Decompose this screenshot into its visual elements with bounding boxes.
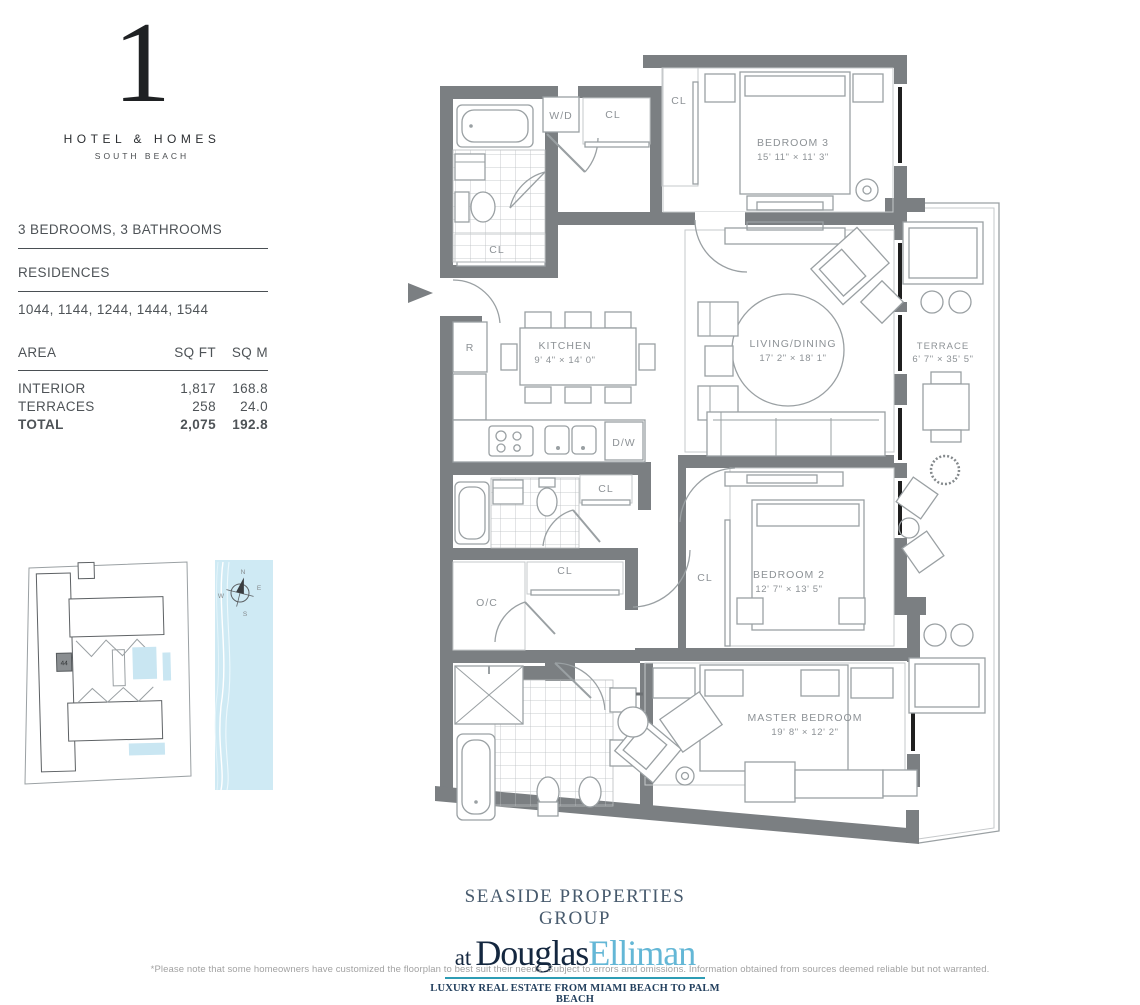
room-dims: 19' 8" × 12' 2"	[771, 727, 838, 738]
room-name: MASTER BEDROOM	[748, 712, 863, 724]
cabinet	[883, 770, 917, 796]
room-dims: 6' 7" × 35' 5"	[912, 354, 973, 365]
sink	[493, 480, 523, 504]
stool	[924, 624, 946, 646]
col-sqft: SQ FT	[154, 345, 216, 360]
side-table	[705, 346, 733, 376]
table-row-total: TOTAL 2,075 192.8	[18, 416, 268, 434]
bed	[740, 72, 850, 194]
compass-w: W	[218, 593, 225, 600]
bathroom-1	[453, 105, 545, 266]
nightstand	[705, 74, 735, 102]
lounge	[903, 222, 983, 284]
closet-hall: CL	[583, 98, 650, 147]
lamp	[856, 179, 878, 201]
pool	[129, 743, 165, 756]
kitchen: R KITCHEN 9' 4" × 14' 0" D/W	[453, 312, 655, 462]
residences-list: 1044, 1144, 1244, 1444, 1544	[18, 302, 268, 317]
area-table-header: AREA SQ FT SQ M	[18, 343, 268, 371]
room-name: BEDROOM 2	[753, 569, 825, 581]
master-bathroom	[455, 663, 643, 820]
row-label: TERRACES	[18, 399, 154, 414]
chair	[525, 312, 551, 328]
oc-label: O/C	[476, 597, 498, 609]
cooktop	[489, 426, 533, 456]
closet-label: CL	[605, 109, 620, 121]
door-arc	[495, 602, 525, 642]
stool	[949, 291, 971, 313]
closet-slider	[531, 590, 619, 595]
nightstand	[851, 668, 893, 698]
closet-label: CL	[697, 572, 712, 584]
stool	[951, 624, 973, 646]
room-dims: 9' 4" × 14' 0"	[534, 355, 595, 366]
hotel-logo: 1 HOTEL & HOMES SOUTH BEACH	[58, 8, 226, 161]
nightstand	[737, 598, 763, 624]
room-dims: 12' 7" × 13' 5"	[755, 584, 822, 595]
chair	[605, 387, 631, 403]
window-living-1	[898, 243, 902, 299]
toilet-tank	[455, 192, 469, 222]
sink	[455, 154, 485, 180]
dresser	[795, 770, 883, 798]
row-sqft: 258	[154, 399, 216, 414]
room-name: LIVING/DINING	[749, 338, 836, 350]
bedroom-2: CL BEDROOM 2 12' 7" × 13' 5"	[680, 468, 865, 646]
chair	[565, 387, 591, 403]
building-footprint: 44	[36, 560, 173, 771]
toilet	[537, 488, 557, 516]
sofa	[707, 412, 885, 456]
pool	[162, 652, 171, 680]
chair	[931, 430, 961, 442]
closet-slider	[457, 262, 545, 266]
room-name: BEDROOM 3	[757, 137, 829, 149]
beds-baths: 3 BEDROOMS, 3 BATHROOMS	[18, 222, 268, 249]
closet-label: CL	[489, 244, 504, 256]
closet-slider	[585, 142, 649, 147]
entry-arrow	[408, 283, 433, 303]
lamp	[676, 767, 694, 785]
closet-slider	[582, 500, 630, 505]
chair	[931, 372, 961, 384]
row-sqm: 24.0	[216, 399, 268, 414]
brokerage-tagline: LUXURY REAL ESTATE FROM MIAMI BEACH TO P…	[430, 983, 720, 1005]
residences-label: RESIDENCES	[18, 265, 268, 292]
chair	[565, 312, 591, 328]
tv-console	[745, 762, 795, 802]
room-dims: 17' 2" × 18' 1"	[759, 353, 826, 364]
nightstand	[839, 598, 865, 624]
sink-basin	[545, 426, 569, 454]
table-row: INTERIOR 1,817 168.8	[18, 380, 268, 398]
room-name: TERRACE	[917, 341, 969, 352]
closet-slider	[725, 520, 730, 646]
closet-label: CL	[671, 95, 686, 107]
brokerage-name: SEASIDE PROPERTIES GROUP	[430, 886, 720, 930]
compass-n: N	[241, 569, 246, 576]
row-sqft: 1,817	[154, 381, 216, 396]
cabinet	[453, 374, 486, 420]
chair	[501, 344, 517, 370]
bedroom-3: CL BEDROOM 3 15' 11" × 11' 3"	[662, 68, 883, 210]
toilet-tank	[539, 478, 555, 487]
lounge	[909, 658, 985, 713]
armchair	[698, 302, 738, 336]
col-area: AREA	[18, 345, 154, 360]
window-bed2-1	[898, 408, 902, 460]
pool	[132, 647, 157, 680]
nightstand	[853, 74, 883, 102]
row-sqm: 192.8	[216, 417, 268, 432]
side-table	[618, 707, 648, 737]
unit-number: 44	[60, 660, 68, 667]
door-leaf	[525, 602, 555, 634]
teal-divider	[445, 977, 705, 979]
row-sqm: 168.8	[216, 381, 268, 396]
closet-slider	[693, 82, 698, 184]
dw-label: D/W	[612, 437, 635, 449]
chair	[639, 344, 655, 370]
owners-closet: O/C	[453, 562, 555, 650]
wd-label: W/D	[549, 110, 572, 122]
nightstand	[653, 668, 695, 698]
round-rug	[732, 294, 844, 406]
logo-numeral: 1	[58, 8, 226, 118]
broker-branding: SEASIDE PROPERTIES GROUP at DouglasEllim…	[430, 886, 720, 1005]
window-bed3	[898, 87, 902, 163]
table	[923, 384, 969, 430]
chair	[605, 312, 631, 328]
logo-brand: HOTEL & HOMES	[58, 132, 226, 146]
area-table: AREA SQ FT SQ M INTERIOR 1,817 168.8 TER…	[18, 343, 268, 434]
unit-info-panel: 3 BEDROOMS, 3 BATHROOMS RESIDENCES 1044,…	[18, 222, 268, 434]
bidet	[579, 777, 601, 807]
sink-basin	[572, 426, 596, 454]
fridge-label: R	[466, 342, 475, 354]
plant	[931, 456, 959, 484]
dresser	[725, 472, 843, 486]
master-bedroom: MASTER BEDROOM 19' 8" × 12' 2"	[615, 665, 917, 802]
floorplan: CL W/D CL CL BEDROOM 3 15' 11" × 11' 3"	[395, 50, 1020, 875]
table-row: TERRACES 258 24.0	[18, 398, 268, 416]
closet-label: CL	[598, 483, 613, 495]
chair	[525, 387, 551, 403]
living-dining: LIVING/DINING 17' 2" × 18' 1"	[698, 222, 903, 456]
room-name: KITCHEN	[538, 340, 591, 352]
compass-e: E	[257, 585, 262, 592]
disclaimer-text: *Please note that some homeowners have c…	[0, 964, 1140, 975]
closet-label: CL	[557, 565, 572, 577]
row-sqft: 2,075	[154, 417, 216, 432]
col-sqm: SQ M	[216, 345, 268, 360]
window-living-2	[898, 315, 902, 371]
room-dims: 15' 11" × 11' 3"	[757, 152, 829, 163]
bench	[747, 196, 833, 210]
site-key-plan: 44 N E W S	[15, 556, 295, 794]
logo-location: SOUTH BEACH	[58, 151, 226, 161]
compass-s: S	[243, 611, 248, 618]
bathroom-2	[455, 478, 600, 548]
row-label: INTERIOR	[18, 381, 154, 396]
stool	[921, 291, 943, 313]
toilet	[471, 192, 495, 222]
row-label: TOTAL	[18, 417, 154, 432]
closet-bath2: CL	[580, 475, 632, 505]
